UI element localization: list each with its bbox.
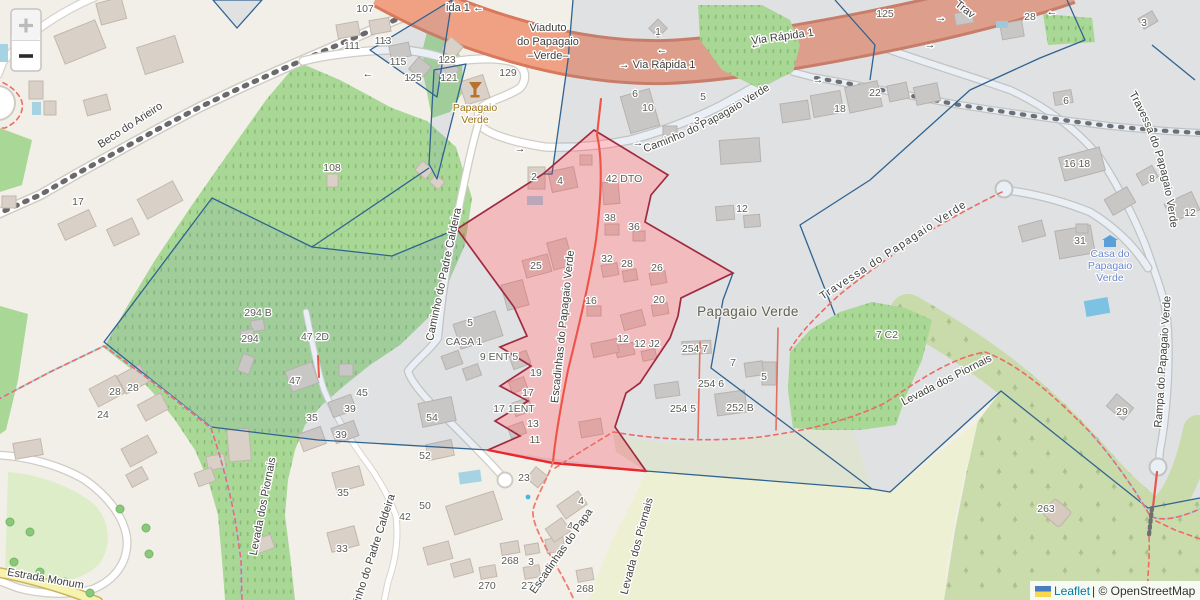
svg-text:107: 107 <box>356 3 374 15</box>
svg-text:5: 5 <box>761 371 767 383</box>
svg-text:54: 54 <box>426 412 438 424</box>
svg-text:47: 47 <box>289 375 301 387</box>
svg-text:Papagaio: Papagaio <box>1088 260 1133 272</box>
svg-text:19: 19 <box>530 367 542 379</box>
svg-text:Verde: Verde <box>1096 272 1124 284</box>
svg-text:3: 3 <box>528 556 534 568</box>
svg-text:←: ← <box>1047 6 1058 18</box>
svg-text:270: 270 <box>478 580 496 592</box>
svg-text:113: 113 <box>375 35 392 47</box>
svg-text:50: 50 <box>419 500 431 512</box>
svg-text:52: 52 <box>419 450 431 462</box>
svg-text:–Verde–: –Verde– <box>528 50 570 62</box>
svg-text:123: 123 <box>438 54 456 66</box>
svg-text:294 B: 294 B <box>244 307 271 319</box>
svg-text:2: 2 <box>531 171 537 183</box>
svg-text:25: 25 <box>530 260 542 272</box>
svg-text:254 7: 254 7 <box>682 343 708 355</box>
svg-text:17: 17 <box>522 387 534 399</box>
svg-text:16 18: 16 18 <box>1064 158 1090 170</box>
svg-text:125: 125 <box>876 8 894 20</box>
svg-text:268: 268 <box>576 583 594 595</box>
svg-text:8: 8 <box>1149 173 1155 185</box>
svg-text:5: 5 <box>467 317 473 329</box>
svg-text:Viaduto: Viaduto <box>529 22 566 34</box>
svg-text:→ Via Rápida 1: → Via Rápida 1 <box>619 59 696 71</box>
svg-text:←: ← <box>749 38 762 51</box>
svg-text:→: → <box>925 39 936 51</box>
svg-text:10: 10 <box>642 102 654 114</box>
svg-text:→: → <box>813 74 824 86</box>
svg-text:254 6: 254 6 <box>698 378 724 390</box>
svg-text:←: ← <box>657 44 668 56</box>
svg-text:129: 129 <box>499 67 517 79</box>
svg-text:Casa do: Casa do <box>1090 248 1129 260</box>
svg-text:Leaflet: Leaflet <box>1054 584 1091 598</box>
svg-text:115: 115 <box>390 56 407 68</box>
svg-text:263: 263 <box>1037 503 1055 515</box>
svg-text:7 C2: 7 C2 <box>876 329 898 341</box>
svg-text:→: → <box>936 12 947 24</box>
svg-text:35: 35 <box>337 487 349 499</box>
svg-text:17: 17 <box>72 196 84 208</box>
svg-text:32: 32 <box>601 253 613 265</box>
svg-text:42: 42 <box>399 511 411 523</box>
svg-text:| © OpenStreetMap: | © OpenStreetMap <box>1092 584 1196 598</box>
svg-text:111: 111 <box>344 40 360 52</box>
svg-text:252 B: 252 B <box>726 402 753 414</box>
svg-text:ida 1 ←: ida 1 ← <box>446 2 484 14</box>
svg-text:12 J2: 12 J2 <box>634 338 660 350</box>
svg-text:108: 108 <box>323 162 341 174</box>
svg-text:12: 12 <box>1184 207 1196 219</box>
svg-text:26: 26 <box>651 262 663 274</box>
svg-text:9 ENT 5: 9 ENT 5 <box>480 351 518 363</box>
svg-text:36: 36 <box>628 221 640 233</box>
svg-text:5: 5 <box>700 91 706 103</box>
svg-text:CASA 1: CASA 1 <box>446 336 483 348</box>
svg-text:31: 31 <box>1074 235 1086 247</box>
svg-text:17 1ENT: 17 1ENT <box>493 403 535 415</box>
svg-text:29: 29 <box>1116 406 1128 418</box>
svg-text:33: 33 <box>336 543 348 555</box>
svg-text:1: 1 <box>655 26 661 38</box>
svg-text:254 5: 254 5 <box>670 403 696 415</box>
svg-text:23: 23 <box>518 472 530 484</box>
svg-text:←: ← <box>363 68 374 80</box>
svg-text:24: 24 <box>97 409 109 421</box>
svg-text:3: 3 <box>1141 17 1147 29</box>
svg-text:13: 13 <box>527 418 539 430</box>
svg-text:268: 268 <box>501 555 519 567</box>
svg-text:22: 22 <box>869 87 881 99</box>
svg-text:38: 38 <box>604 212 616 224</box>
svg-text:Verde: Verde <box>461 114 489 126</box>
svg-text:125: 125 <box>404 72 422 84</box>
svg-text:294: 294 <box>241 333 259 345</box>
svg-text:20: 20 <box>653 294 665 306</box>
svg-text:Papagaio Verde: Papagaio Verde <box>697 304 799 319</box>
svg-text:12: 12 <box>617 333 629 345</box>
svg-text:7: 7 <box>730 357 736 369</box>
svg-text:28: 28 <box>621 258 633 270</box>
svg-text:28: 28 <box>127 382 139 394</box>
svg-text:47 2D: 47 2D <box>301 331 329 343</box>
svg-text:do Papagaio: do Papagaio <box>517 36 579 48</box>
svg-text:18: 18 <box>834 103 846 115</box>
svg-text:16: 16 <box>585 295 597 307</box>
svg-text:28: 28 <box>109 386 121 398</box>
svg-text:39: 39 <box>335 429 347 441</box>
svg-text:→: → <box>633 137 644 149</box>
svg-text:4: 4 <box>557 175 563 187</box>
svg-text:Papagaio: Papagaio <box>453 102 498 114</box>
svg-text:42 DTO: 42 DTO <box>606 173 643 185</box>
svg-text:→: → <box>515 143 526 155</box>
svg-text:11: 11 <box>530 434 541 446</box>
svg-text:28: 28 <box>1024 11 1036 23</box>
svg-text:6: 6 <box>632 88 638 100</box>
svg-text:45: 45 <box>356 387 368 399</box>
svg-text:39: 39 <box>344 403 356 415</box>
svg-text:12: 12 <box>736 203 748 215</box>
svg-text:4: 4 <box>578 495 584 507</box>
svg-text:121: 121 <box>440 72 458 84</box>
svg-text:35: 35 <box>306 412 318 424</box>
svg-text:6: 6 <box>1063 95 1069 107</box>
